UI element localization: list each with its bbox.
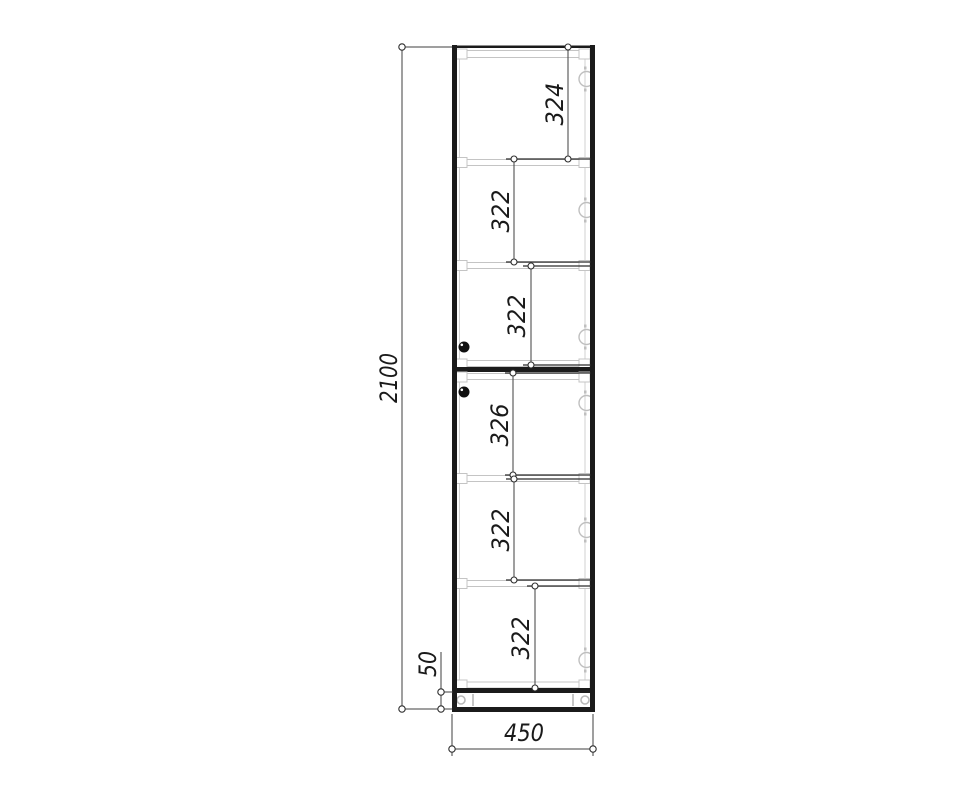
bottom-panel-band xyxy=(460,682,582,688)
dim-text-width: 450 xyxy=(504,719,544,747)
dim-section-1: 324 xyxy=(541,44,571,162)
dim-endpoint xyxy=(511,156,517,162)
dim-text-section-5: 322 xyxy=(487,509,515,552)
dim-extension-lines xyxy=(505,159,591,586)
bottom-panel xyxy=(452,680,595,693)
dim-section-3: 322 xyxy=(503,263,534,368)
dim-endpoint xyxy=(438,706,444,712)
cabinet-left-edge xyxy=(452,45,457,712)
cabinet xyxy=(452,45,595,712)
dim-text-plinth-height: 50 xyxy=(414,651,442,677)
dim-endpoint xyxy=(528,362,534,368)
dim-text-overall-height: 2100 xyxy=(375,353,403,403)
panel-end-block xyxy=(456,158,467,168)
dim-endpoint xyxy=(449,746,455,752)
door-handle-icon xyxy=(459,342,470,353)
dim-text-section-4: 326 xyxy=(486,404,514,447)
cabinet-top-edge xyxy=(452,46,595,49)
bottom-edge xyxy=(452,688,595,693)
dimensions: 2100 50 450 324 xyxy=(375,44,596,756)
panel-end-block xyxy=(456,49,467,59)
cabinet-elevation-drawing: 2100 50 450 324 xyxy=(0,0,978,800)
dim-overall-height: 2100 xyxy=(375,44,452,712)
cabinet-right-edge xyxy=(590,45,595,712)
dim-width: 450 xyxy=(449,714,596,756)
dim-endpoint xyxy=(528,263,534,269)
panel-end-block xyxy=(579,49,590,59)
dim-endpoint xyxy=(511,259,517,265)
dim-endpoint xyxy=(590,746,596,752)
dim-endpoint xyxy=(438,689,444,695)
plinth-bottom-edge xyxy=(452,707,595,712)
adjustable-foot-icon xyxy=(457,696,465,704)
door-split xyxy=(452,359,595,382)
dim-plinth-height: 50 xyxy=(414,651,453,712)
plinth xyxy=(452,694,595,712)
dim-endpoint xyxy=(399,706,405,712)
dim-section-2: 322 xyxy=(487,156,517,265)
dim-endpoint xyxy=(565,44,571,50)
dim-endpoint xyxy=(532,685,538,691)
dim-endpoint xyxy=(511,476,517,482)
split-lower-band xyxy=(460,374,582,380)
panel-end-block xyxy=(456,579,467,589)
panel-end-block xyxy=(456,372,467,382)
door-handle-icon xyxy=(459,387,470,398)
dim-endpoint xyxy=(399,44,405,50)
dim-endpoint xyxy=(565,156,571,162)
top-panel xyxy=(456,49,590,59)
top-panel-band xyxy=(460,51,582,58)
panel-end-block xyxy=(456,261,467,271)
dim-text-section-1: 324 xyxy=(541,83,569,126)
dim-section-5: 322 xyxy=(487,476,517,583)
dim-section-4: 326 xyxy=(486,370,516,478)
drawing-canvas: 2100 50 450 324 xyxy=(0,0,978,800)
dim-text-section-3: 322 xyxy=(503,295,531,338)
adjustable-foot-icon xyxy=(581,696,589,704)
dim-section-6: 322 xyxy=(507,583,538,691)
split-line xyxy=(452,367,595,372)
dim-endpoint xyxy=(511,577,517,583)
dim-endpoint xyxy=(532,583,538,589)
dim-text-section-6: 322 xyxy=(507,617,535,660)
dim-text-section-2: 322 xyxy=(487,190,515,233)
dim-endpoint xyxy=(510,370,516,376)
panel-end-block xyxy=(456,474,467,484)
shelf-band xyxy=(460,160,582,166)
